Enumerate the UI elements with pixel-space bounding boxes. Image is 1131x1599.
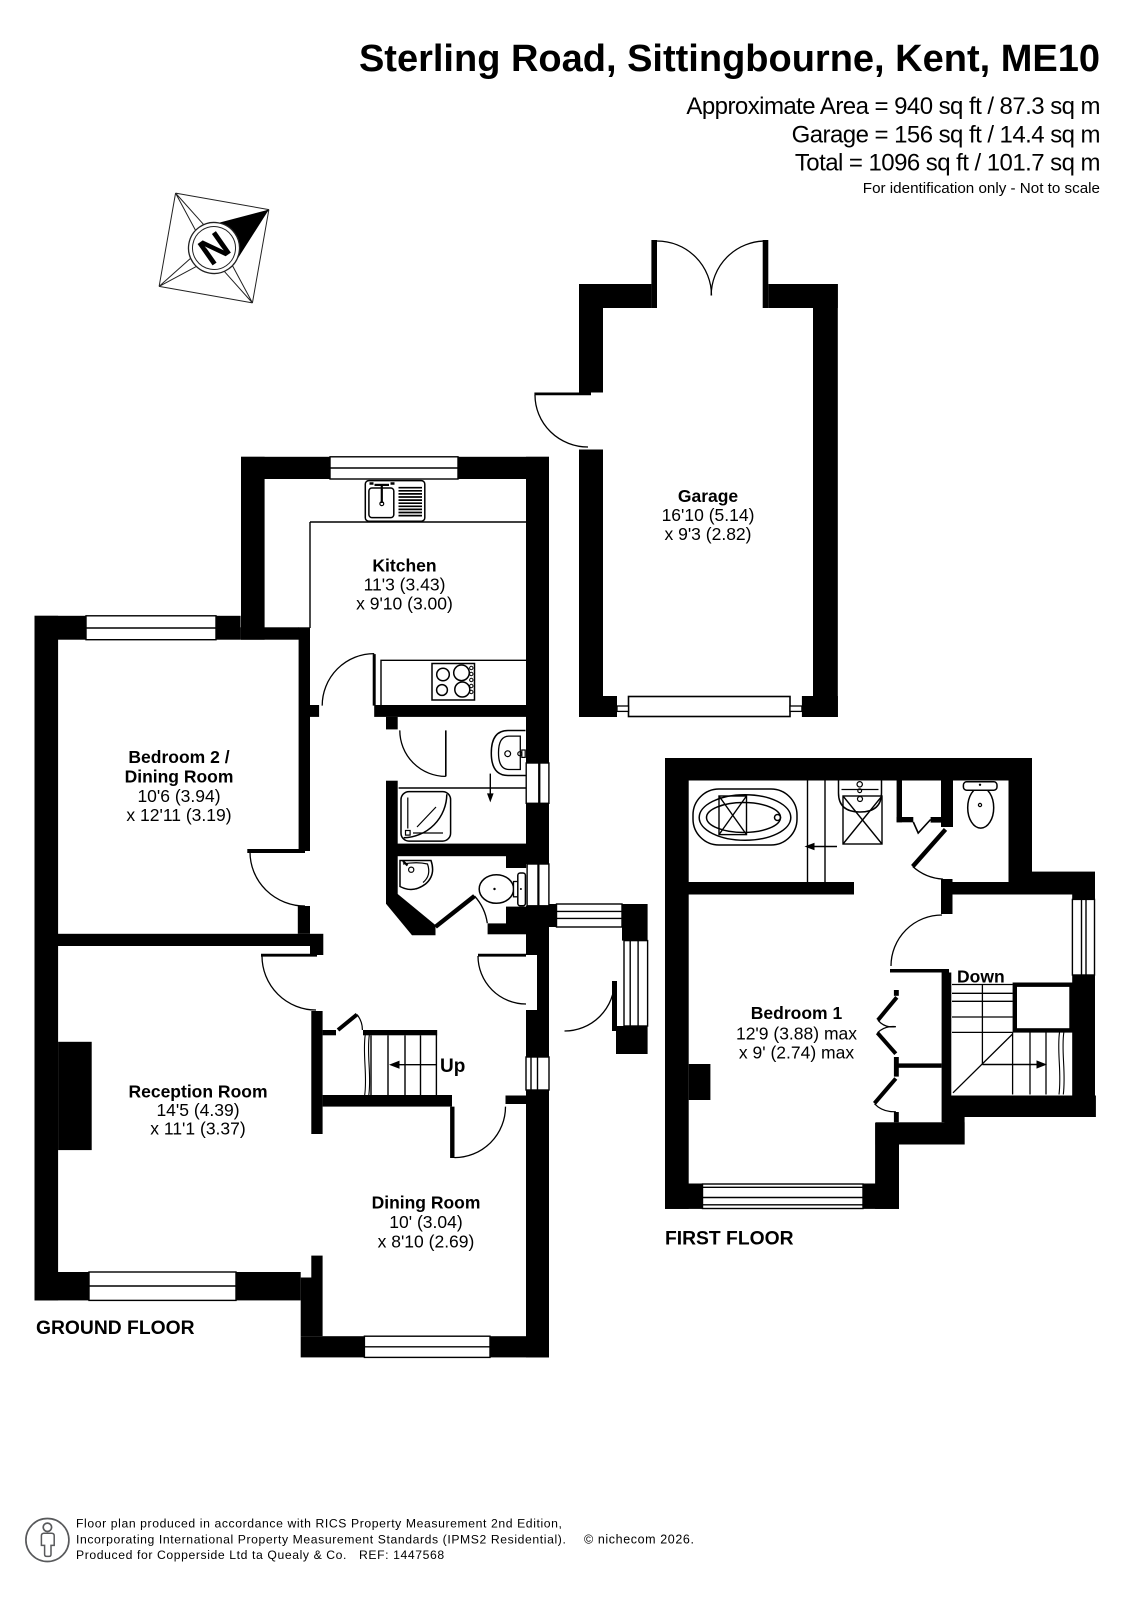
svg-text:x 8'10 (2.69): x 8'10 (2.69) [378, 1231, 475, 1251]
svg-text:Produced for Copperside Ltd ta: Produced for Copperside Ltd ta Quealy & … [76, 1548, 445, 1562]
svg-text:Garage: Garage [678, 486, 739, 506]
svg-text:Bedroom 1: Bedroom 1 [751, 1003, 843, 1023]
svg-text:Garage = 156 sq ft / 14.4 sq m: Garage = 156 sq ft / 14.4 sq m [792, 122, 1100, 149]
svg-text:FIRST FLOOR: FIRST FLOOR [665, 1229, 794, 1250]
svg-text:For identification only - Not: For identification only - Not to scale [863, 180, 1100, 197]
svg-text:x 9' (2.74) max: x 9' (2.74) max [739, 1043, 854, 1063]
svg-text:Incorporating International Pr: Incorporating International Property Mea… [76, 1532, 566, 1546]
svg-text:Dining Room: Dining Room [125, 766, 234, 786]
svg-text:Approximate Area = 940 sq ft /: Approximate Area = 940 sq ft / 87.3 sq m [686, 93, 1100, 120]
svg-text:12'9 (3.88) max: 12'9 (3.88) max [736, 1024, 857, 1044]
svg-text:x 12'11 (3.19): x 12'11 (3.19) [126, 805, 231, 825]
svg-text:Kitchen: Kitchen [372, 556, 436, 576]
svg-text:Up: Up [440, 1056, 465, 1077]
svg-text:10'6 (3.94): 10'6 (3.94) [137, 786, 220, 806]
svg-text:GROUND FLOOR: GROUND FLOOR [36, 1318, 195, 1339]
svg-text:x 9'10 (3.00): x 9'10 (3.00) [356, 594, 453, 614]
svg-text:x 9'3 (2.82): x 9'3 (2.82) [665, 524, 752, 544]
svg-text:14'5 (4.39): 14'5 (4.39) [156, 1100, 239, 1120]
svg-text:16'10 (5.14): 16'10 (5.14) [662, 505, 755, 525]
svg-text:Bedroom 2 /: Bedroom 2 / [128, 747, 229, 767]
svg-text:Reception Room: Reception Room [128, 1081, 267, 1101]
svg-text:Sterling Road, Sittingbourne,: Sterling Road, Sittingbourne, Kent, ME10 [359, 38, 1100, 80]
svg-text:Floor plan produced in accorda: Floor plan produced in accordance with R… [76, 1517, 563, 1531]
svg-text:10' (3.04): 10' (3.04) [389, 1212, 462, 1232]
svg-text:x 11'1 (3.37): x 11'1 (3.37) [150, 1119, 245, 1139]
svg-text:Down: Down [957, 966, 1005, 986]
svg-text:Total = 1096 sq ft / 101.7 sq: Total = 1096 sq ft / 101.7 sq m [795, 150, 1100, 177]
svg-text:© nichecom 2026.: © nichecom 2026. [584, 1532, 695, 1546]
svg-text:11'3 (3.43): 11'3 (3.43) [364, 575, 446, 595]
svg-text:Dining Room: Dining Room [372, 1192, 481, 1212]
